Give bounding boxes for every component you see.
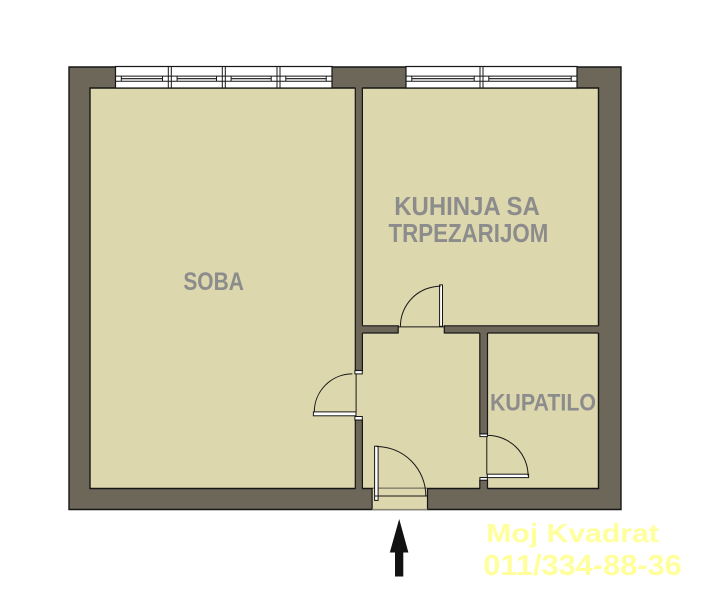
svg-text:011/334-88-36: 011/334-88-36 — [483, 550, 682, 582]
svg-text:KUHINJA SA: KUHINJA SA — [394, 193, 540, 221]
svg-text:KUPATILO: KUPATILO — [490, 389, 596, 416]
svg-text:TRPEZARIJOM: TRPEZARIJOM — [389, 220, 549, 248]
svg-text:SOBA: SOBA — [183, 268, 244, 296]
svg-text:Moj Kvadrat: Moj Kvadrat — [486, 518, 659, 548]
